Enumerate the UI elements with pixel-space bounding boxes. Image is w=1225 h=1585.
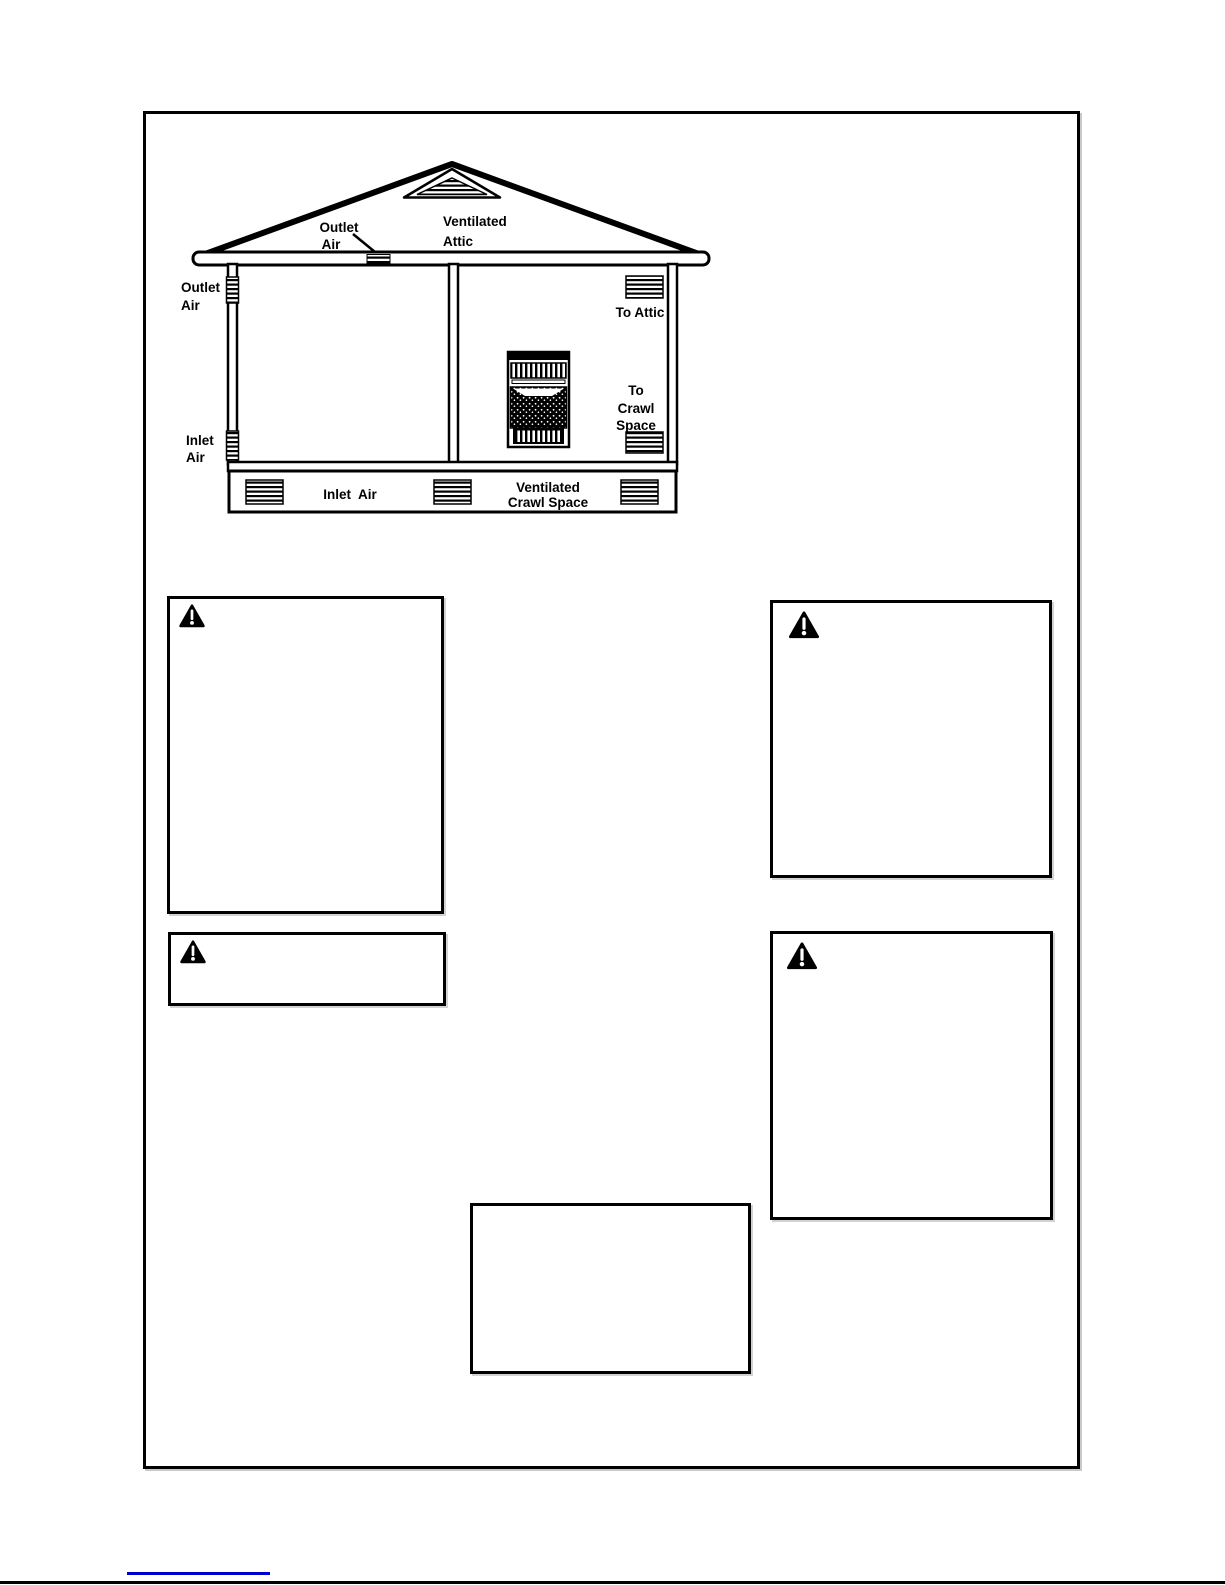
ventilated-attic-label-1: Ventilated xyxy=(443,214,507,229)
to-crawl-vent-icon xyxy=(626,432,663,453)
warning-triangle-icon xyxy=(179,604,205,628)
roof-outlet-air-label-2: Air xyxy=(322,237,342,252)
middle-wall xyxy=(449,264,458,464)
roof-outlet-air-label-1: Outlet xyxy=(320,220,360,235)
wall-inlet-air-label-1: Inlet xyxy=(186,433,214,448)
house-ventilation-diagram: Outlet Air Ventilated Attic Outlet Air T… xyxy=(155,140,730,525)
to-crawl-label-1: To xyxy=(628,383,644,398)
ventilated-attic-label-2: Attic xyxy=(443,234,473,249)
warning-box-top-right xyxy=(770,600,1052,878)
warning-triangle-icon xyxy=(787,940,817,972)
bottom-page-rule xyxy=(0,1581,1225,1584)
crawl-inlet-air-label: Inlet Air xyxy=(323,487,377,502)
wall-outlet-air-label-1: Outlet xyxy=(181,280,221,295)
gas-heater-icon xyxy=(508,352,569,447)
wall-inlet-vent-icon xyxy=(227,431,239,460)
note-box-bottom-center xyxy=(470,1203,751,1374)
to-attic-label: To Attic xyxy=(616,305,665,320)
warning-box-top-left xyxy=(167,596,444,914)
ventilated-crawl-label-1: Ventilated xyxy=(516,480,580,495)
wall-inlet-air-label-2: Air xyxy=(186,450,206,465)
crawl-vent-middle-icon xyxy=(434,480,471,504)
to-attic-vent-icon xyxy=(626,276,663,298)
crawl-vent-right-icon xyxy=(621,480,658,504)
right-wall xyxy=(668,264,677,464)
warning-triangle-icon xyxy=(180,940,206,964)
wall-outlet-air-label-2: Air xyxy=(181,298,201,313)
warning-box-mid-left xyxy=(168,932,446,1006)
footer-link-underline[interactable] xyxy=(127,1572,270,1575)
roof-outlet-vent-icon xyxy=(367,255,390,264)
ventilated-crawl-label-2: Crawl Space xyxy=(508,495,589,510)
wall-outlet-vent-icon xyxy=(227,277,239,303)
to-crawl-label-2: Crawl xyxy=(618,401,655,416)
warning-box-mid-right xyxy=(770,931,1053,1220)
warning-triangle-icon xyxy=(789,609,819,641)
outlet-air-arrow xyxy=(353,234,375,252)
crawl-vent-left-icon xyxy=(246,480,283,504)
to-crawl-label-3: Space xyxy=(616,418,656,433)
